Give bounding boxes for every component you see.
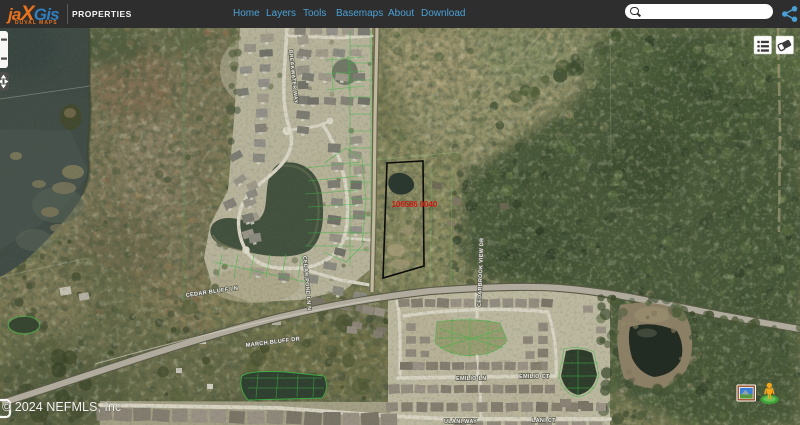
svg-text:106586 0040: 106586 0040: [392, 200, 438, 209]
svg-text:ULANI WAY: ULANI WAY: [444, 419, 477, 425]
svg-text:© 2024 NEFMLS, Inc: © 2024 NEFMLS, Inc: [2, 400, 121, 414]
svg-text:EMILIO LN: EMILIO LN: [456, 376, 487, 382]
svg-text:LANI CT: LANI CT: [532, 418, 556, 424]
svg-text:EMILIO CT: EMILIO CT: [519, 374, 550, 380]
